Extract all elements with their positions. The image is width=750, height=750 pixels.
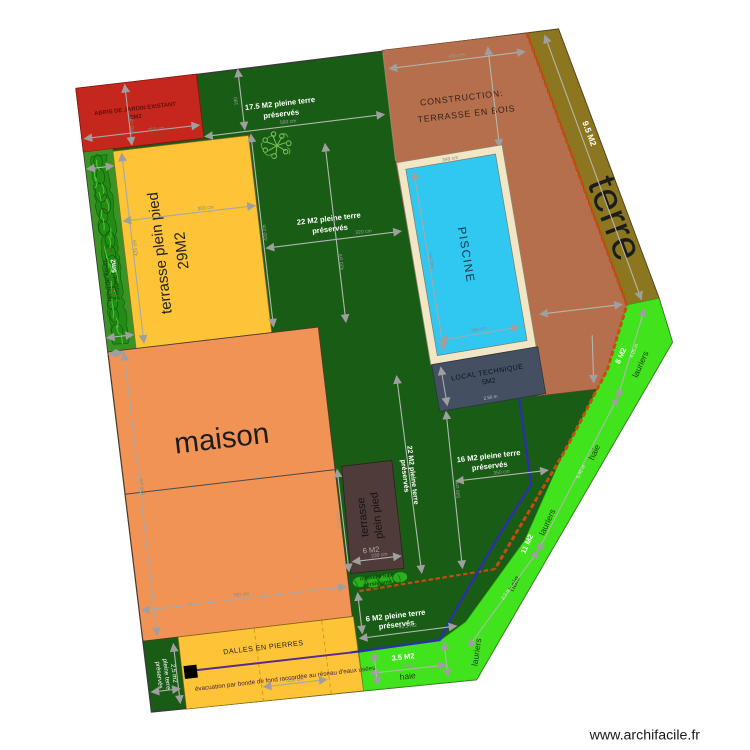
svg-text:190: 190 xyxy=(233,96,240,105)
svg-text:www.archifacile.fr: www.archifacile.fr xyxy=(589,728,701,744)
svg-text:haie: haie xyxy=(399,670,416,682)
